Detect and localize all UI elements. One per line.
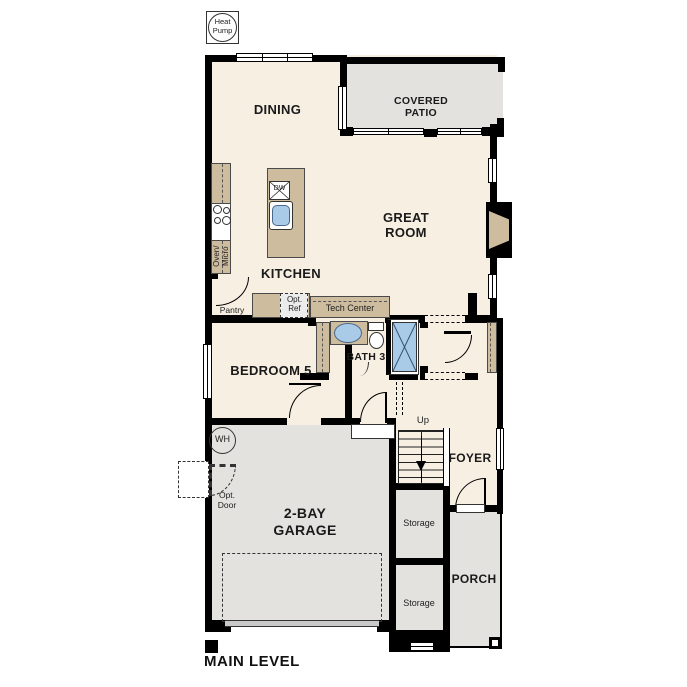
- window-dining-top: [236, 53, 313, 62]
- room-label-foyer: FOYER: [445, 451, 495, 465]
- room-label-great-room: GREAT ROOM: [360, 210, 452, 241]
- toilet-tank: [368, 322, 384, 331]
- shower: [392, 322, 417, 372]
- room-label-kitchen: KITCHEN: [245, 266, 337, 281]
- wall-hall-bottom-a: [211, 418, 287, 425]
- stairs-arrow-head: [416, 461, 426, 471]
- window-mullion: [262, 54, 263, 61]
- window-patio-door-right: [437, 128, 482, 135]
- wall-garage-east: [389, 425, 396, 632]
- cooktop-burner: [222, 216, 231, 225]
- label-opt-door: Opt. Door: [211, 491, 243, 511]
- garage-door-dashed-outline: [222, 553, 382, 622]
- plan-title: MAIN LEVEL: [204, 653, 344, 671]
- plan-marker-square: [205, 640, 218, 653]
- opening-closet-foyer: [425, 372, 465, 380]
- label-up: Up: [410, 416, 436, 427]
- shower-x-icon: [393, 323, 416, 371]
- wall-patio-right-stub-top: [498, 57, 505, 72]
- room-label-storage-lower: Storage: [398, 598, 440, 608]
- water-heater-label: WH: [209, 434, 236, 444]
- optional-door-jamb: [178, 461, 209, 498]
- closet-dashline: [490, 323, 492, 372]
- room-label-covered-patio: COVERED PATIO: [375, 95, 467, 120]
- front-door-threshold: [456, 504, 485, 513]
- window-bedroom5: [203, 344, 212, 399]
- stairs-arrow-line: [421, 436, 422, 462]
- closet-door-leaf: [444, 331, 471, 334]
- label-tech-center: Tech Center: [315, 303, 385, 313]
- window-foyer: [496, 428, 504, 470]
- window-greatroom-lower: [488, 274, 497, 299]
- label-opt-ref: Opt. Ref: [281, 295, 308, 313]
- kitchen-sink-basin: [272, 205, 290, 226]
- garage-door-panel: [225, 620, 379, 627]
- bath-sink: [334, 323, 362, 343]
- garage-entry-door-leaf: [385, 392, 387, 423]
- window-mullion: [388, 129, 389, 134]
- wall-under-stairs: [395, 483, 449, 490]
- room-label-porch: PORCH: [447, 572, 501, 586]
- cooktop-burner: [213, 205, 222, 214]
- toilet-bowl: [369, 332, 384, 349]
- wall-stub-greatroom-se: [468, 293, 477, 319]
- wall-foyer-porch-b: [485, 505, 497, 512]
- room-label-storage-upper: Storage: [398, 518, 440, 528]
- wall-porch-bottom-thin: [449, 646, 501, 648]
- wall-storage-divider: [395, 558, 449, 565]
- label-pantry: Pantry: [215, 306, 249, 316]
- window-mullion: [287, 54, 288, 61]
- dishwasher: DW: [269, 181, 290, 200]
- window-mullion: [460, 129, 461, 134]
- window-bottom: [410, 642, 434, 651]
- opening-hall-stairs: [396, 377, 403, 415]
- coat-closet-shelf: [487, 322, 497, 373]
- floor-plan: DW WH: [0, 0, 687, 687]
- stairs-arrow-tail: [421, 471, 422, 482]
- wall-hall-bottom-b: [321, 418, 354, 425]
- cooktop-burner: [223, 207, 230, 214]
- wall-patio-right-stub-bottom: [497, 118, 504, 137]
- cooktop-burner: [214, 217, 221, 224]
- opening-greatroom-closet: [425, 315, 465, 323]
- bedroom5-door-leaf: [289, 383, 321, 385]
- kitchen-counter-upper: [211, 163, 231, 204]
- wall-patio-top: [340, 57, 505, 64]
- wall-right-foyer: [497, 318, 503, 514]
- window-patio-door-left: [353, 128, 424, 135]
- window-dining-patio: [338, 86, 347, 130]
- room-label-bedroom5: BEDROOM 5: [216, 363, 326, 378]
- dishwasher-label: DW: [270, 185, 289, 193]
- room-label-dining: DINING: [230, 102, 325, 117]
- window-greatroom-upper: [488, 158, 497, 183]
- upper-cabinet-dashline: [222, 164, 224, 203]
- wall-closet-bottom: [464, 373, 478, 380]
- room-label-bath3: BATH 3: [342, 351, 390, 363]
- wall-patio-sill-mid: [424, 129, 437, 137]
- garage-step: [351, 424, 395, 439]
- label-oven-micro: Oven/ Micro: [212, 226, 230, 286]
- room-label-garage: 2-BAY GARAGE: [250, 505, 360, 538]
- heat-pump-label: Heat Pump: [206, 18, 239, 35]
